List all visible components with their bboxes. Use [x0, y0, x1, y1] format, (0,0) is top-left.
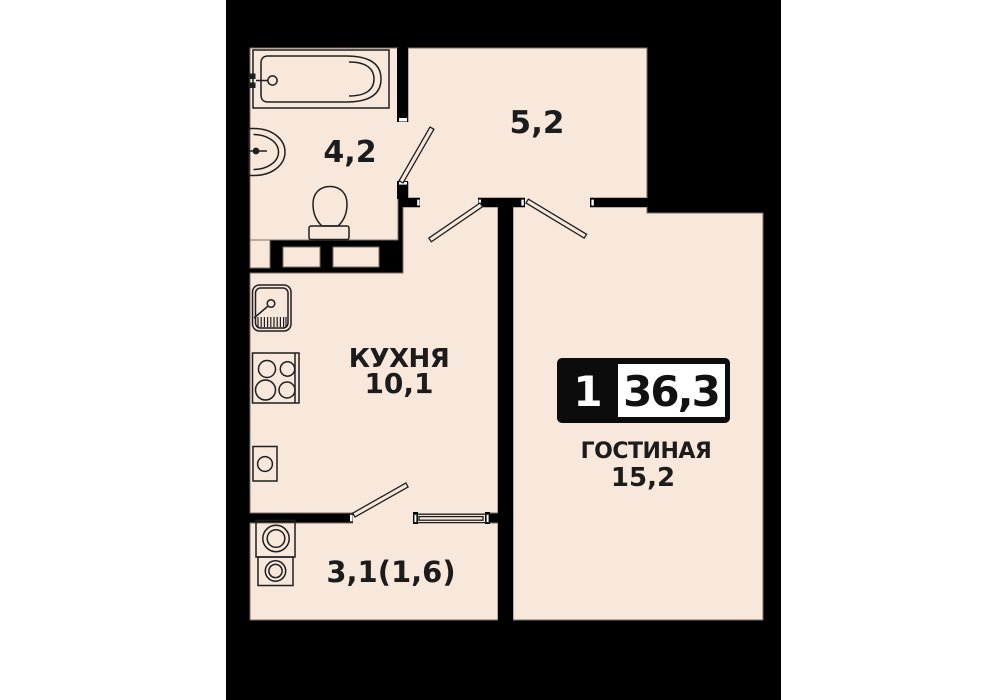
shaft-slot-right — [333, 247, 379, 267]
hallway-area-label: 5,2 — [510, 105, 565, 141]
jamb-mark — [414, 514, 416, 522]
balcony-area-label: 3,1(1,6) — [326, 555, 455, 589]
bathroom-right-wall — [397, 48, 408, 122]
bathtub-faucet-handle — [249, 74, 256, 80]
jamb-mark — [350, 515, 353, 522]
living-room-area-label: 15,2 — [611, 463, 675, 493]
kitchen-area-label: 10,1 — [364, 367, 433, 400]
jamb-mark — [487, 514, 489, 522]
hall-wall-stub-right — [590, 198, 647, 207]
jamb-mark — [417, 200, 419, 206]
window-glazing — [419, 517, 483, 521]
bathroom-area-label: 4,2 — [323, 135, 376, 170]
kitchen-living-wall — [498, 198, 513, 630]
shaft-slot-left — [250, 240, 270, 268]
living-room-name-label: ГОСТИНАЯ — [581, 439, 712, 464]
bathtub-faucet-handle — [249, 83, 256, 89]
hall-wall-stub-left — [400, 198, 420, 207]
jamb-mark — [591, 200, 593, 206]
jamb-mark — [521, 200, 523, 206]
shaft-slot-mid — [283, 247, 320, 267]
basin-faucet-head — [253, 148, 260, 155]
balcony-doorway — [353, 512, 413, 524]
kitchen-doorway — [420, 197, 478, 208]
badge-total-area: 36,3 — [623, 367, 719, 416]
area-badge: 1 36,3 — [557, 358, 730, 423]
badge-rooms-count: 1 — [573, 367, 600, 416]
jamb-mark — [399, 118, 407, 122]
floorplan-page: 1 36,3 4,2 5,2 КУХНЯ 10,1 ГОСТИНАЯ 15,2 … — [0, 0, 1006, 700]
floorplan-canvas: 1 36,3 4,2 5,2 КУХНЯ 10,1 ГОСТИНАЯ 15,2 … — [0, 0, 1006, 700]
